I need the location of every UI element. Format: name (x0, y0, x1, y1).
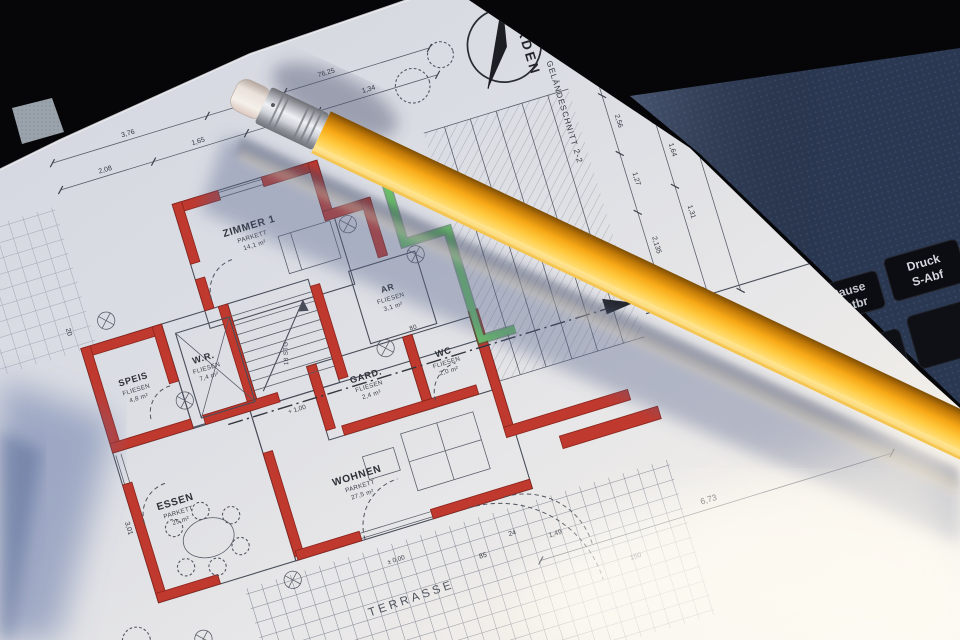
photo-scene: Pause Untbr Druck S-Abf (0, 0, 960, 640)
stairs-note: 18 STG (282, 341, 290, 365)
scene-canvas: Pause Untbr Druck S-Abf (0, 0, 960, 640)
